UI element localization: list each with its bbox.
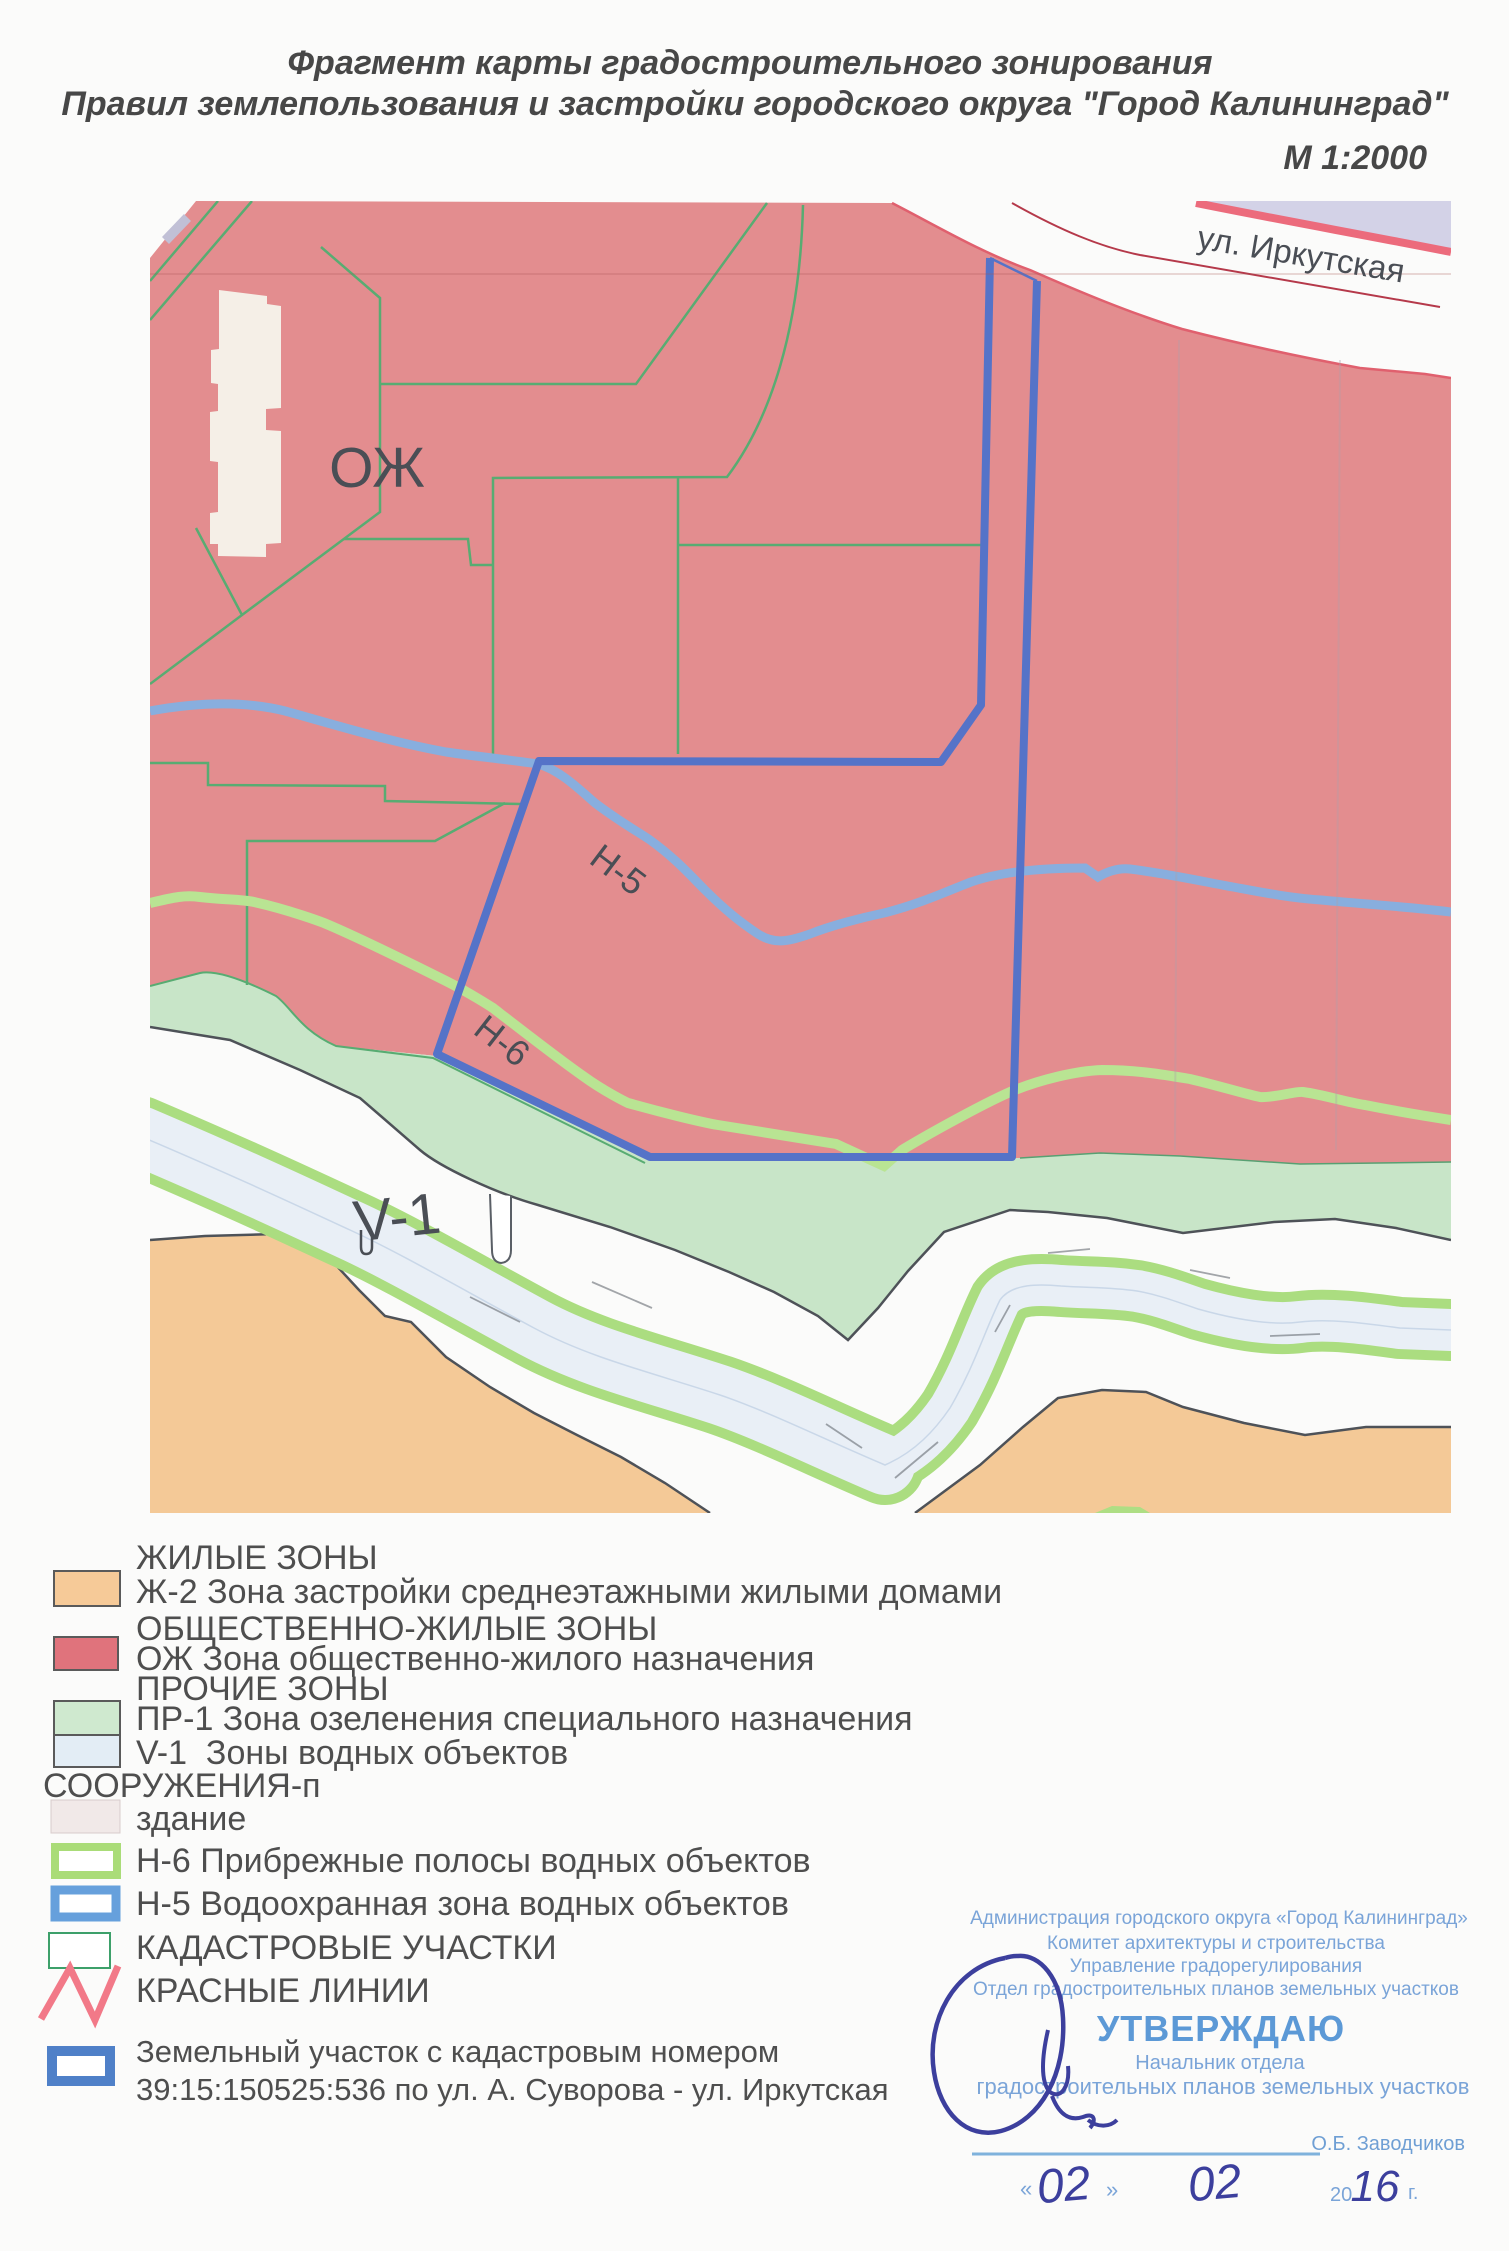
svg-text:Фрагмент карты градостроительн: Фрагмент карты градостроительного зониро… bbox=[288, 44, 1213, 82]
svg-text:Ж-2 Зона застройки среднеэтажн: Ж-2 Зона застройки среднеэтажными жилыми… bbox=[136, 1573, 1002, 1611]
svg-text:«: « bbox=[1020, 2176, 1032, 2201]
svg-text:Земельный участок с кадастровы: Земельный участок с кадастровым номером bbox=[136, 2034, 779, 2069]
svg-text:02: 02 bbox=[1186, 2155, 1244, 2212]
svg-text:ОЖ: ОЖ bbox=[329, 436, 425, 500]
svg-text:Комитет архитектуры и строител: Комитет архитектуры и строительства bbox=[1047, 1933, 1385, 1954]
svg-text:здание: здание bbox=[136, 1800, 246, 1838]
svg-text:20: 20 bbox=[1330, 2184, 1352, 2206]
svg-text:02: 02 bbox=[1035, 2157, 1093, 2214]
svg-text:Отдел градостроительных планов: Отдел градостроительных планов земельных… bbox=[973, 1979, 1459, 2000]
svg-text:УТВЕРЖДАЮ: УТВЕРЖДАЮ bbox=[1097, 2008, 1345, 2049]
svg-text:Управление градорегулирования: Управление градорегулирования bbox=[1070, 1956, 1362, 1977]
svg-text:Администрация городского округ: Администрация городского округа «Город К… bbox=[970, 1908, 1468, 1929]
svg-text:О.Б. Заводчиков: О.Б. Заводчиков bbox=[1311, 2133, 1465, 2155]
svg-text:КРАСНЫЕ ЛИНИИ: КРАСНЫЕ ЛИНИИ bbox=[136, 1972, 430, 2010]
svg-text:16: 16 bbox=[1351, 2162, 1400, 2211]
svg-text:г.: г. bbox=[1408, 2182, 1418, 2204]
svg-text:ПР-1 Зона озеленения специальн: ПР-1 Зона озеленения специального назнач… bbox=[136, 1700, 913, 1738]
svg-text:Правил землепользования и заст: Правил землепользования и застройки горо… bbox=[61, 85, 1449, 123]
svg-text:V-1: V-1 bbox=[350, 1181, 443, 1255]
svg-text:КАДАСТРОВЫЕ УЧАСТКИ: КАДАСТРОВЫЕ УЧАСТКИ bbox=[136, 1929, 557, 1967]
svg-text:М 1:2000: М 1:2000 bbox=[1283, 139, 1427, 177]
svg-text:Н-6 Прибрежные полосы водных о: Н-6 Прибрежные полосы водных объектов bbox=[136, 1842, 811, 1880]
svg-text:ЖИЛЫЕ ЗОНЫ: ЖИЛЫЕ ЗОНЫ bbox=[136, 1539, 378, 1577]
svg-text:Н-5 Водоохранная зона водных о: Н-5 Водоохранная зона водных объектов bbox=[136, 1885, 789, 1923]
svg-text:Начальник отдела: Начальник отдела bbox=[1135, 2052, 1305, 2074]
svg-text:39:15:150525:536 по ул. А. Сув: 39:15:150525:536 по ул. А. Суворова - ул… bbox=[136, 2072, 889, 2107]
svg-text:»: » bbox=[1106, 2177, 1118, 2202]
